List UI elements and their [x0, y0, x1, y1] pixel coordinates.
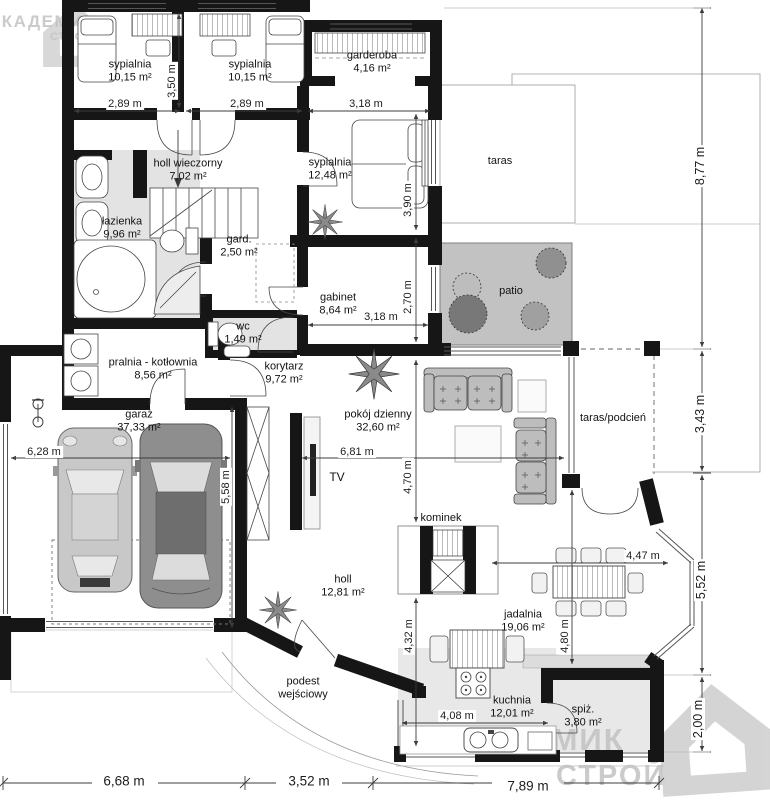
room-name: sypialnia — [108, 59, 151, 72]
bay-window — [654, 529, 694, 659]
dim-prawa-2: 3,43 m — [693, 393, 707, 435]
window-master-east — [432, 120, 436, 184]
door-pralnia-korytarz — [230, 360, 266, 396]
glass-wall-east — [569, 357, 574, 473]
sofa-top — [424, 368, 512, 412]
room-label-pralnia: pralnia - kotłownia 8,56 m² — [109, 357, 198, 382]
desk-right — [200, 14, 250, 36]
dim-kuchnia-szer: 4,08 m — [438, 710, 476, 722]
gard-shelves — [256, 244, 294, 302]
kitchen-counter — [400, 726, 556, 754]
room-area: 2,50 m² — [220, 246, 257, 259]
dim-gabinet-szer: 3,18 m — [362, 311, 400, 323]
label-tv: TV — [329, 471, 344, 484]
bed-master — [352, 120, 428, 208]
closet-hatched — [247, 407, 269, 540]
room-name: garaż — [117, 409, 160, 422]
room-area: 8,64 m² — [319, 304, 356, 317]
room-label-jadalnia: jadalnia 19,06 m² — [501, 609, 544, 634]
floor-plan-page: АКАДЕМИК СТРОЙ АКАДЕМИК СТРОЙ — [0, 0, 770, 800]
label-taras-podcien: taras/podcień — [580, 412, 646, 425]
room-area: 10,15 m² — [108, 71, 151, 84]
window-garage-west — [4, 424, 8, 614]
room-label-wc: wc 1,49 m² — [224, 321, 261, 346]
room-label-kuchnia: kuchnia 12,01 m² — [490, 695, 533, 720]
room-name: holl — [321, 574, 364, 587]
room-area: 12,48 m² — [308, 169, 351, 182]
room-name: łazienka — [102, 216, 142, 229]
chair-left — [146, 40, 170, 56]
door-french-taras — [582, 488, 638, 514]
room-area: 9,72 m² — [264, 373, 303, 386]
dim-dol-3: 7,89 m — [505, 779, 550, 794]
room-area: 7,02 m² — [153, 170, 222, 183]
bicycle — [32, 399, 44, 427]
dim-gabinet-gleb: 2,70 m — [402, 278, 414, 316]
room-name: wc — [224, 321, 261, 334]
chair-right — [212, 40, 236, 56]
dim-prawa-4: 2,00 m — [691, 698, 705, 740]
furniture — [32, 14, 643, 754]
room-name: korytarz — [264, 361, 303, 374]
room-label-garaz: garaż 37,33 m² — [117, 409, 160, 434]
room-name: pralnia - kotłownia — [109, 357, 198, 370]
podest-line2: wejściowy — [278, 688, 328, 701]
room-name: gabinet — [319, 292, 356, 305]
door-bedroom-left — [157, 120, 192, 155]
room-area: 32,60 m² — [344, 421, 411, 434]
room-label-sypialnia-lewa: sypialnia 10,15 m² — [108, 59, 151, 84]
room-label-gabinet: gabinet 8,64 m² — [319, 292, 356, 317]
podest-line1: podest — [278, 676, 328, 689]
room-label-garderoba: garderoba 4,16 m² — [347, 50, 397, 75]
label-taras: taras — [488, 155, 512, 168]
window-spiz-south — [623, 753, 648, 757]
room-area: 3,80 m² — [564, 716, 601, 729]
room-area: 10,15 m² — [228, 71, 271, 84]
room-area: 37,33 m² — [117, 421, 160, 434]
room-name: holl wieczorny — [153, 158, 222, 171]
room-label-holl: holl 12,81 m² — [321, 574, 364, 599]
dim-garaz-gleb: 5,58 m — [220, 468, 232, 506]
room-name: kuchnia — [490, 695, 533, 708]
tv-screen — [310, 444, 316, 496]
label-podest-wejsciowy: podest wejściowy — [278, 676, 328, 701]
dim-dol-1: 6,68 m — [101, 774, 146, 789]
bathtub — [74, 240, 156, 318]
car-light — [53, 428, 137, 592]
end-table — [518, 380, 546, 412]
sofa-right — [514, 418, 556, 504]
dim-jadalnia-szer: 4,47 m — [624, 550, 662, 562]
room-label-lazienka: łazienka 9,96 m² — [102, 216, 142, 241]
room-area: 19,06 m² — [501, 621, 544, 634]
dim-sypialnie-gleb: 3,50 m — [166, 62, 178, 100]
room-label-korytarz: korytarz 9,72 m² — [264, 361, 303, 386]
floor-plan-drawing: АКАДЕМИК СТРОЙ АКАДЕМИК СТРОЙ — [0, 0, 770, 800]
room-area: 1,49 m² — [224, 333, 261, 346]
label-patio: patio — [499, 285, 523, 298]
fireplace — [398, 526, 498, 594]
tv-unit — [304, 417, 320, 529]
desk-left — [132, 14, 182, 36]
label-kominek: kominek — [421, 512, 462, 525]
dim-sypialnia-glowna-gleb: 3,90 m — [402, 181, 414, 219]
room-label-holl-wieczorny: holl wieczorny 7,02 m² — [153, 158, 222, 183]
room-label-gard: gard. 2,50 m² — [220, 234, 257, 259]
room-name: garderoba — [347, 50, 397, 63]
room-area: 12,81 m² — [321, 586, 364, 599]
room-name: sypialnia — [228, 59, 271, 72]
dim-sypialnia-lewa-szer: 2,89 m — [106, 98, 144, 110]
dim-sypialnia-prawa-szer: 2,89 m — [228, 98, 266, 110]
watermark-text-br-2: СТРОЙ — [556, 758, 666, 792]
window-patio-wall — [444, 347, 561, 355]
coffee-table — [455, 426, 501, 462]
window-gabinet-east — [432, 267, 436, 311]
dim-sypialnia-glowna-szer: 3,18 m — [347, 98, 385, 110]
door-entrance — [294, 620, 335, 658]
dim-prawa-3: 5,52 m — [694, 559, 708, 601]
room-name: gard. — [220, 234, 257, 247]
room-area: 12,01 m² — [490, 707, 533, 720]
door-bedroom-right — [200, 120, 235, 155]
room-name: spiż. — [564, 704, 601, 717]
room-label-sypialnia-prawa: sypialnia 10,15 m² — [228, 59, 271, 84]
room-area: 9,96 m² — [102, 228, 142, 241]
dim-prawa-1: 8,77 m — [693, 145, 707, 187]
room-name: jadalnia — [501, 609, 544, 622]
room-label-spiz: spiż. 3,80 m² — [564, 704, 601, 729]
dim-jadalnia-gleb: 4,80 m — [559, 617, 571, 655]
watermark-house-logo-bottom — [656, 680, 770, 797]
room-name: sypialnia — [308, 157, 351, 170]
room-label-sypialnia-glowna: sypialnia 12,48 m² — [308, 157, 351, 182]
dim-dol-2: 3,52 m — [286, 774, 331, 789]
toilet-bathroom — [160, 228, 198, 254]
car-dark — [135, 424, 227, 608]
room-label-pokoj-dzienny: pokój dzienny 32,60 m² — [344, 409, 411, 434]
dim-garaz-szer: 6,28 m — [25, 446, 63, 458]
room-area: 4,16 m² — [347, 62, 397, 75]
dim-pokoj-szer: 6,81 m — [338, 446, 376, 458]
radiator-master — [422, 120, 428, 186]
dim-pokoj-gleb: 4,70 m — [402, 458, 414, 496]
dim-holl-gleb: 4,32 m — [403, 617, 415, 655]
room-area: 8,56 m² — [109, 369, 198, 382]
room-name: pokój dzienny — [344, 409, 411, 422]
